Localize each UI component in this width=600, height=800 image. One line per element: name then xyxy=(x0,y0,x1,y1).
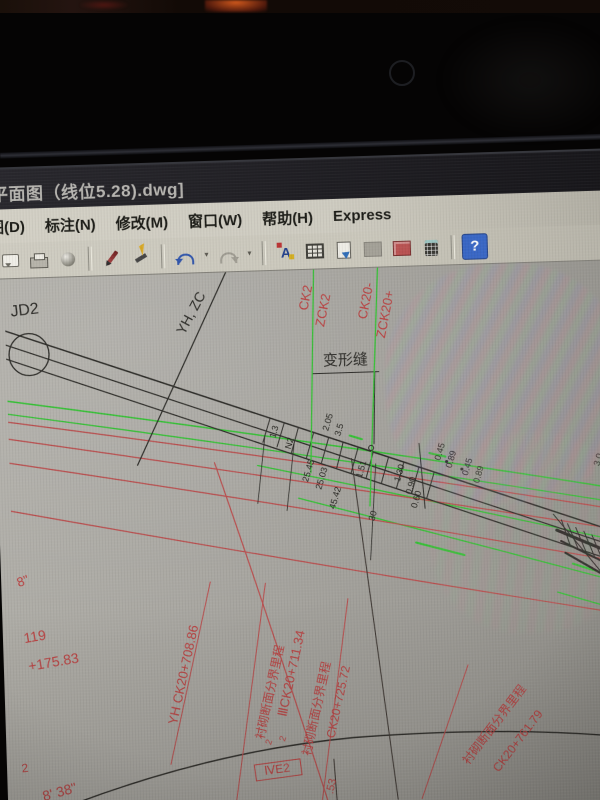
toolbar-separator xyxy=(161,244,166,268)
section-descender-line xyxy=(351,457,398,800)
angle-label-partial: 8" xyxy=(15,572,32,590)
small-red-mark: 2 xyxy=(277,735,288,743)
small-red-mark: 2 xyxy=(263,738,274,746)
menu-item-3[interactable]: 修改(M) xyxy=(115,211,168,234)
angle-label-partial: 8' 38" xyxy=(41,779,79,800)
bezel-reflection xyxy=(440,20,600,140)
dim-tick xyxy=(380,457,389,483)
image-icon[interactable] xyxy=(388,234,415,262)
redo-icon[interactable] xyxy=(215,240,242,268)
monitor-bezel xyxy=(0,0,600,170)
deformation-joint-label: 变形缝 xyxy=(323,351,369,369)
toolbar-separator xyxy=(88,246,93,270)
station-label: YH CK20+708.86 xyxy=(165,623,201,725)
coordinate-label-partial: 119 xyxy=(22,626,47,646)
dimension-text: 1.30 xyxy=(392,463,406,483)
green-tick xyxy=(350,435,362,439)
background-orange-object xyxy=(205,0,267,12)
lining-boundary-label: 衬砌断面分界里程 xyxy=(299,660,334,757)
zone-label: ⅣE2 xyxy=(263,760,291,777)
angle-label-partial: 2 xyxy=(21,761,30,776)
webcam-ring xyxy=(389,60,415,86)
dimension-text: 2.05 xyxy=(320,412,334,432)
extension-line xyxy=(256,437,267,503)
text-style-icon[interactable]: A xyxy=(273,238,300,266)
boundary-line-yh-zc xyxy=(132,272,232,465)
undo-icon[interactable] xyxy=(172,241,199,269)
coordinate-label-partial: +175.83 xyxy=(27,649,80,673)
station-label: CK2 xyxy=(296,284,316,312)
drawing-canvas[interactable]: JD2YH, ZC变形缝2.053.51.3N225.4525.0345.421… xyxy=(0,260,600,800)
photo-of-monitor: 平面图（线位5.28).dwg] 绘图(D)标注(N)修改(M)窗口(W)帮助(… xyxy=(0,0,600,800)
station-label: CK20- xyxy=(355,281,377,320)
print-icon[interactable] xyxy=(26,246,53,274)
layer-grid-icon[interactable] xyxy=(302,237,329,265)
background-red-object xyxy=(80,0,128,10)
toolbar-separator xyxy=(262,241,267,265)
dimension-text: 3.5 xyxy=(332,422,345,437)
plot-bubble-icon[interactable] xyxy=(0,247,23,275)
undo-dropdown-icon[interactable]: ▾ xyxy=(201,241,213,268)
dimension-text: 25.03 xyxy=(314,466,330,490)
dimension-text: 1.3 xyxy=(267,424,280,439)
jd-point-label: JD2 xyxy=(9,300,39,320)
menu-item-1[interactable]: 绘图(D) xyxy=(0,215,25,238)
cad-application-window: 平面图（线位5.28).dwg] 绘图(D)标注(N)修改(M)窗口(W)帮助(… xyxy=(0,148,600,800)
menu-item-4[interactable]: 窗口(W) xyxy=(188,208,243,231)
sheet-copy-icon[interactable] xyxy=(330,236,357,264)
window-title: 平面图（线位5.28).dwg] xyxy=(0,175,184,206)
calculator-icon[interactable] xyxy=(417,234,444,262)
block-icon[interactable] xyxy=(359,235,386,263)
label-underline xyxy=(313,372,379,374)
dimension-text: 45.42 xyxy=(327,486,343,510)
match-properties-icon[interactable] xyxy=(128,243,155,271)
lining-boundary-label: 衬砌断面分界里程 xyxy=(459,682,529,768)
station-label: ZCK2 xyxy=(312,292,333,328)
help-icon[interactable]: ? xyxy=(461,233,488,260)
redo-dropdown-icon[interactable]: ▾ xyxy=(244,239,256,266)
menu-item-6[interactable]: Express xyxy=(333,206,392,225)
curve-point-label: YH, ZC xyxy=(173,289,209,337)
dim-tick xyxy=(306,433,315,458)
menu-item-5[interactable]: 帮助(H) xyxy=(262,206,313,229)
pen-icon[interactable] xyxy=(99,244,126,272)
toolbar-separator xyxy=(450,235,455,259)
menu-item-2[interactable]: 标注(N) xyxy=(44,213,95,236)
sphere-icon[interactable] xyxy=(55,245,82,273)
